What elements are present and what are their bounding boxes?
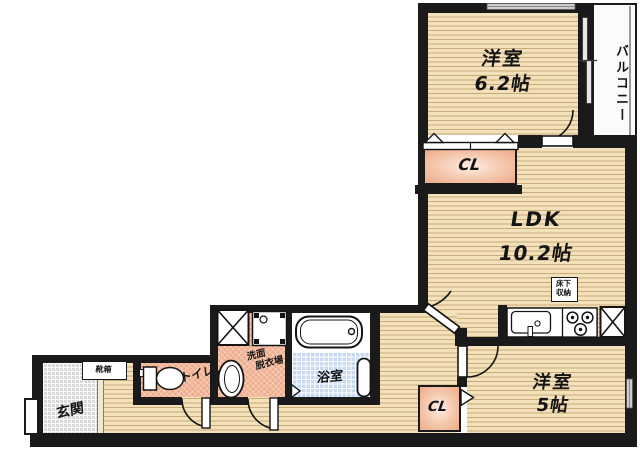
bedroom-north-size: 6.2帖 [426, 69, 580, 96]
bathtub-icon [296, 317, 362, 348]
underfloor-storage-line2: 収納 [551, 288, 576, 297]
window-north-icon [487, 4, 575, 10]
ldk-door-icon [424, 291, 460, 333]
ldk-size: 10.2帖 [434, 237, 639, 266]
toilet-door-icon [182, 398, 210, 428]
closet-north-label: CL [421, 155, 517, 174]
washing-machine-space-icon [218, 310, 249, 345]
closet-north-folding-door-icon [423, 134, 518, 150]
bedroom-north-name: 洋室 [426, 44, 580, 71]
refrigerator-space-icon [601, 307, 626, 337]
underfloor-storage-label: 床下 収納 [551, 279, 576, 298]
washer-pan-icon [253, 312, 287, 346]
bedroom-south-size: 5帖 [471, 391, 635, 417]
ldk-name: LDK [434, 207, 638, 231]
balcony-sliding-door-icon [579, 18, 597, 104]
washroom-door-icon [248, 398, 278, 430]
floorplan-canvas: 洋室 6.2帖 バルコニー CL LDK 10.2帖 床下 収納 洋室 5帖 C… [0, 0, 640, 449]
underfloor-storage-line1: 床下 [551, 279, 576, 288]
kitchen-counter-icon [507, 308, 597, 337]
balcony-label: バルコニー [598, 28, 630, 140]
closet-south-label: CL [417, 399, 459, 415]
shoe-cabinet-label: 靴箱 [81, 364, 126, 375]
bedroom-north-door-icon [542, 110, 573, 146]
